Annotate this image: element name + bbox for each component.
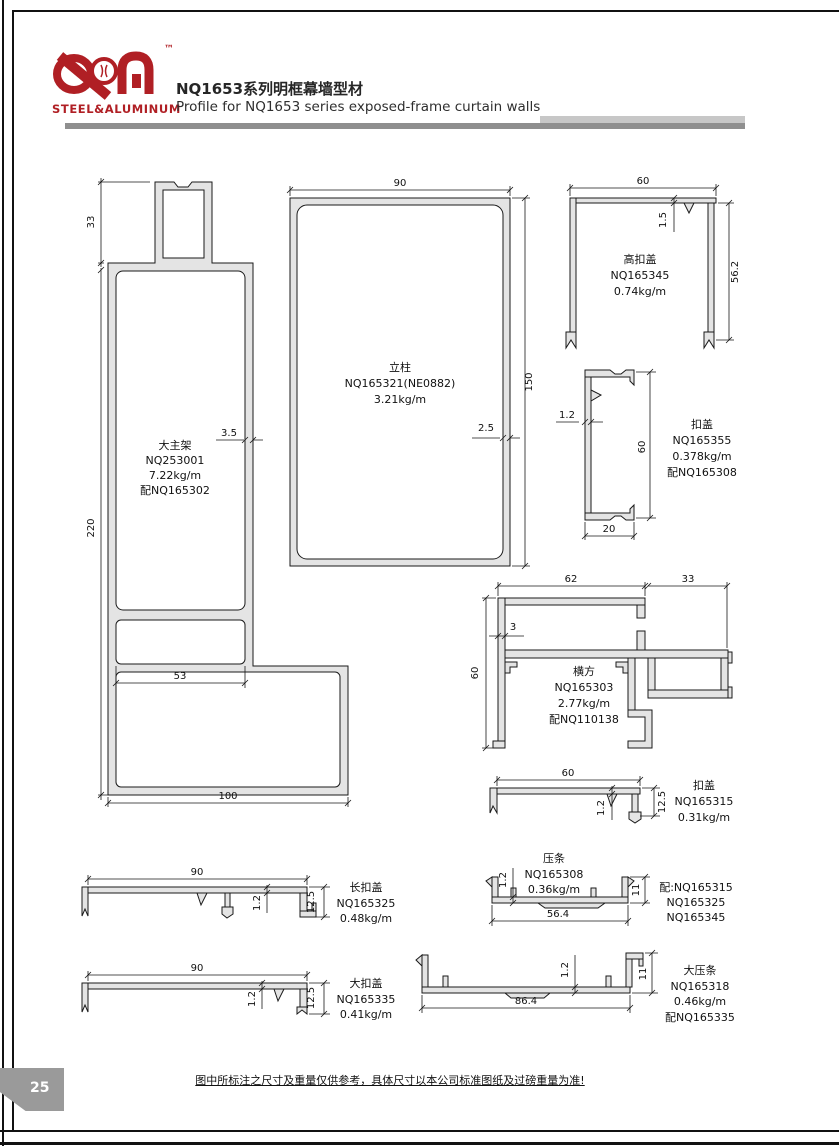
dim-label: 33: [86, 216, 97, 229]
dim-label: 90: [191, 867, 204, 878]
profile-code: NQ165303: [555, 681, 614, 694]
profile-code: NQ165318: [671, 980, 730, 993]
profile-weight: 0.378kg/m: [672, 450, 731, 463]
profile-weight: 7.22kg/m: [149, 469, 201, 482]
dim-label: 1.2: [560, 962, 571, 978]
profile-drawing-cap-355: 1.2 60 20 扣盖 NQ165355 0.378kg/m 配NQ16530…: [556, 369, 737, 540]
dim-label: 12.5: [657, 791, 668, 813]
profile-drawing-mullion: 90 150 2.5 立柱 NQ165321(NE0882) 3.21kg/m: [287, 178, 535, 569]
profile-match: 配NQ165335: [665, 1011, 735, 1024]
profile-code: NQ253001: [146, 454, 205, 467]
profile-name: 长扣盖: [350, 880, 383, 894]
dim-label: 53: [174, 671, 187, 682]
dim-label: 3.5: [221, 428, 237, 439]
dim-label: 60: [637, 441, 648, 454]
dim-label: 3: [510, 622, 516, 633]
profile-weight: 0.41kg/m: [340, 1008, 392, 1021]
profile-drawing-cap-315: 60 1.2 12.5 扣盖 NQ165315 0.31kg/m: [490, 768, 733, 824]
dim-label: 1.2: [596, 800, 607, 816]
dim-label: 11: [638, 968, 649, 981]
profile-drawing-transom: 62 33 3 60 横方 NQ165303 2.77kg/m 配NQ11013…: [470, 574, 732, 751]
profile-name: 扣盖: [693, 778, 715, 792]
profile-drawings: 33 220 3.5 53 100 大主架 NQ253001 7.22kg/m …: [0, 0, 839, 1146]
dim-label: 220: [86, 518, 97, 537]
profile-match: 配NQ165308: [667, 466, 737, 479]
profile-weight: 0.36kg/m: [528, 883, 580, 896]
profile-code: NQ165315: [675, 795, 734, 808]
profile-match: 配NQ165302: [140, 484, 210, 497]
profile-name: 立柱: [389, 360, 411, 374]
profile-drawing-big-bead: 1.2 11 86.4 大压条 NQ165318 0.46kg/m 配NQ165…: [416, 950, 735, 1024]
dim-label: 62: [565, 574, 578, 585]
dim-label: 1.2: [559, 410, 575, 421]
profile-weight: 0.46kg/m: [674, 995, 726, 1008]
dim-label: 1.2: [252, 895, 263, 911]
profile-name: 大压条: [684, 963, 717, 977]
profile-drawing-bead: 1.2 11 56.4 压条 NQ165308 0.36kg/m 配:NQ165…: [486, 851, 733, 926]
profile-match: 配NQ110138: [549, 713, 619, 726]
dim-label: 56.4: [547, 909, 569, 920]
dim-label: 12.5: [306, 891, 317, 913]
dim-label: 11: [631, 884, 642, 897]
dim-label: 1.2: [247, 991, 258, 1007]
profile-name: 高扣盖: [624, 252, 657, 266]
profile-match: NQ165325: [667, 896, 726, 909]
profile-drawing-big-cap: 90 1.2 12.5 大扣盖 NQ165335 0.41kg/m: [82, 963, 395, 1021]
dim-label: 60: [470, 667, 481, 680]
profile-name: 压条: [543, 851, 565, 865]
profile-weight: 2.77kg/m: [558, 697, 610, 710]
profile-name: 扣盖: [691, 417, 713, 431]
profile-name: 大主架: [159, 438, 192, 452]
profile-code: NQ165345: [611, 269, 670, 282]
profile-weight: 0.31kg/m: [678, 811, 730, 824]
dim-label: 12.5: [306, 987, 317, 1009]
profile-code: NQ165308: [525, 868, 584, 881]
dim-label: 60: [637, 176, 650, 187]
profile-weight: 0.48kg/m: [340, 912, 392, 925]
profile-name: 横方: [573, 664, 595, 678]
profile-match: 配:NQ165315: [659, 881, 733, 894]
dim-label: 90: [191, 963, 204, 974]
profile-code: NQ165335: [337, 993, 396, 1006]
profile-code: NQ165355: [673, 434, 732, 447]
dim-label: 20: [603, 524, 616, 535]
dim-label: 100: [218, 791, 237, 802]
catalog-page: ™ STEEL&ALUMINUM NQ1653系列明框幕墙型材 Profile …: [0, 0, 839, 1146]
dim-label: 56.2: [730, 261, 741, 283]
profile-drawing-long-cap: 90 1.2 12.5 长扣盖 NQ165325 0.48kg/m: [82, 867, 395, 925]
dim-label: 1.5: [658, 212, 669, 228]
dim-label: 2.5: [478, 423, 494, 434]
dim-label: 86.4: [515, 996, 537, 1007]
profile-weight: 0.74kg/m: [614, 285, 666, 298]
profile-name: 大扣盖: [350, 976, 383, 990]
footer-note: 图中所标注之尺寸及重量仅供参考，具体尺寸以本公司标准图纸及过磅重量为准!: [0, 1072, 780, 1088]
dim-label: 60: [562, 768, 575, 779]
profile-code: NQ165325: [337, 897, 396, 910]
dim-label: 90: [394, 178, 407, 189]
profile-weight: 3.21kg/m: [374, 393, 426, 406]
profile-code: NQ165321(NE0882): [345, 377, 456, 390]
dim-label: 150: [524, 372, 535, 391]
profile-drawing-high-cap: 60 1.5 56.2 高扣盖 NQ165345 0.74kg/m: [566, 176, 741, 348]
profile-match: NQ165345: [667, 911, 726, 924]
dim-label: 33: [682, 574, 695, 585]
dim-label: 1.2: [498, 872, 509, 888]
